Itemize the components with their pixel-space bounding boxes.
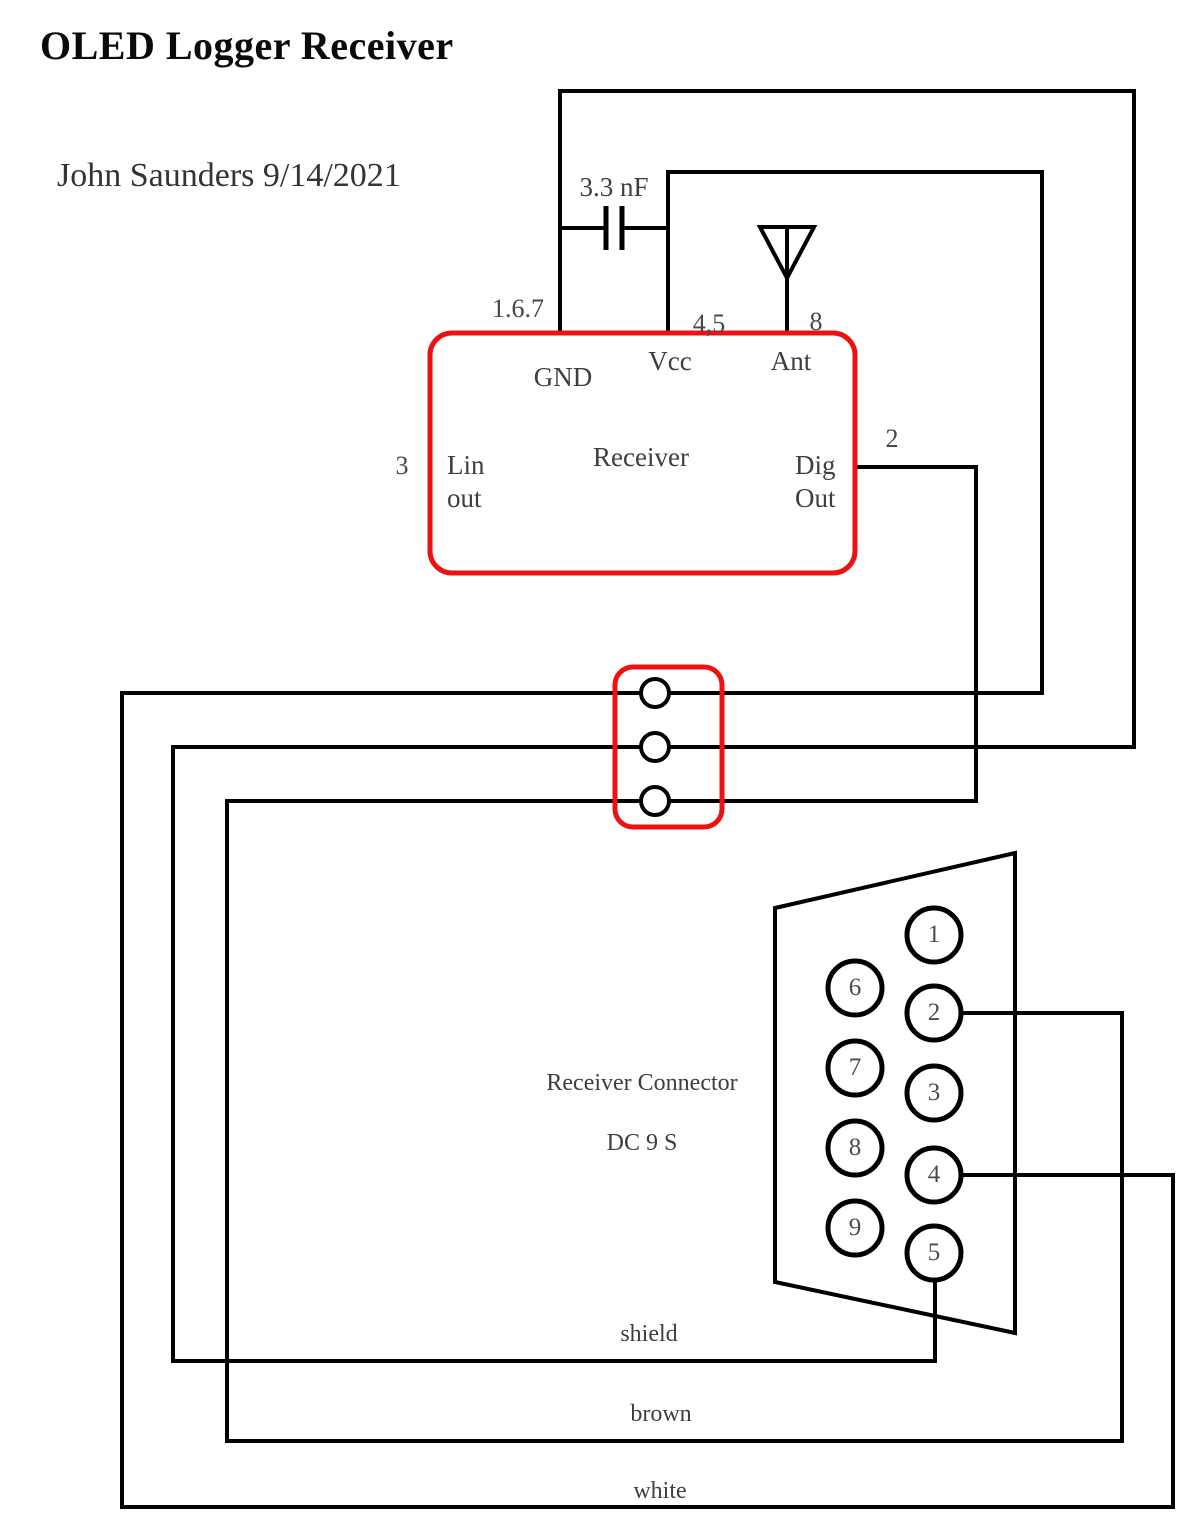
vcc-pin-numbers: 4,5 xyxy=(684,308,734,339)
schematic-linework xyxy=(0,0,1201,1535)
dig-out-pin-label: Dig Out xyxy=(795,449,836,515)
db9-pin-2-number: 2 xyxy=(912,998,956,1028)
ant-pin-number: 8 xyxy=(796,306,836,337)
db9-pin-8-number: 8 xyxy=(833,1133,877,1163)
schematic-page: OLED Logger Receiver John Saunders 9/14/… xyxy=(0,0,1201,1535)
wire-dig-out xyxy=(669,467,976,801)
db9-pin-9-number: 9 xyxy=(833,1213,877,1243)
vcc-pin-label: Vcc xyxy=(633,345,707,377)
db9-pin-1-number: 1 xyxy=(912,920,956,950)
inline-connector-pin-bottom-circle xyxy=(641,787,669,815)
capacitor-value-label: 3.3 nF xyxy=(564,171,664,203)
db9-caption-line2: DC 9 S xyxy=(607,1130,678,1156)
shield-wire-label: shield xyxy=(599,1320,699,1349)
lin-out-pin-label: Lin out xyxy=(447,449,485,515)
inline-connector-pin-top-circle xyxy=(641,679,669,707)
db9-pin-6-number: 6 xyxy=(833,973,877,1003)
db9-pin-5-number: 5 xyxy=(912,1238,956,1268)
gnd-pin-numbers: 1.6.7 xyxy=(486,293,550,324)
db9-connector-caption: Receiver Connector DC 9 S xyxy=(517,1038,767,1158)
author-date: John Saunders 9/14/2021 xyxy=(57,156,401,197)
db9-pin-4-number: 4 xyxy=(912,1160,956,1190)
dig-out-pin-number: 2 xyxy=(872,423,912,454)
db9-caption-line1: Receiver Connector xyxy=(546,1070,737,1096)
db9-connector-body xyxy=(775,853,1015,1333)
receiver-block-name: Receiver xyxy=(571,441,711,473)
page-title: OLED Logger Receiver xyxy=(40,22,454,70)
gnd-pin-label: GND xyxy=(526,361,600,393)
lin-out-pin-number: 3 xyxy=(382,450,422,481)
db9-pin-7-number: 7 xyxy=(833,1053,877,1083)
inline-connector-pin-middle-circle xyxy=(641,733,669,761)
white-wire-label: white xyxy=(610,1477,710,1506)
brown-wire-label: brown xyxy=(611,1400,711,1429)
db9-pin-3-number: 3 xyxy=(912,1078,956,1108)
ant-pin-label: Ant xyxy=(754,345,828,377)
